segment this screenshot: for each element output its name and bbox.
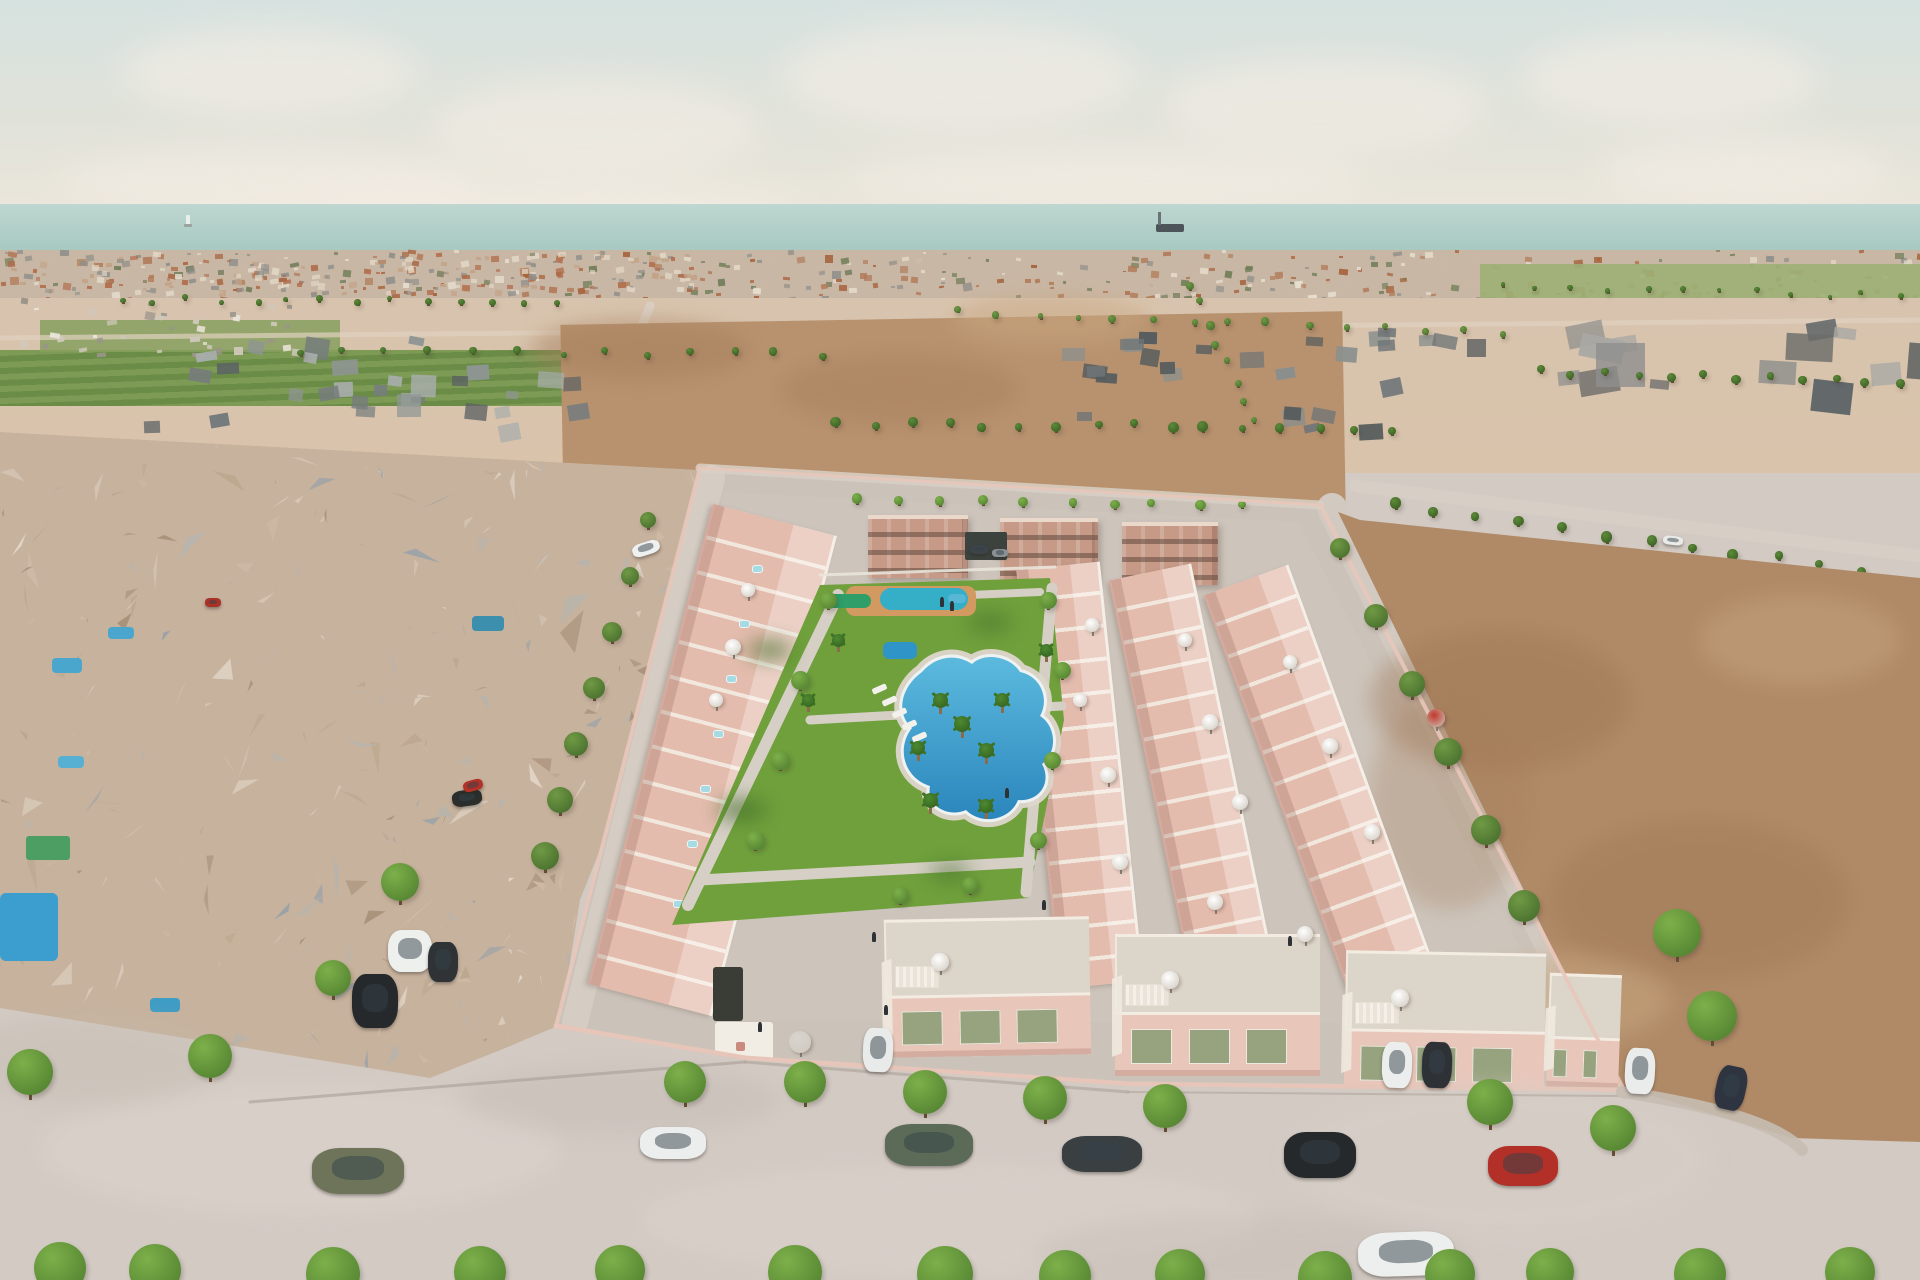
- coastal-city-building: [1132, 256, 1136, 259]
- boats: [1156, 224, 1184, 232]
- row-tree: [1390, 497, 1401, 508]
- foreground-cropped-trees: [1674, 1248, 1726, 1280]
- coastal-city-left-building: [636, 274, 643, 278]
- coastal-city-left-building: [235, 279, 243, 286]
- coastal-city-building: [1750, 257, 1757, 263]
- parasol-umbrella: [1364, 824, 1380, 840]
- coastal-city-building: [215, 253, 223, 258]
- roof-jacuzzis: [752, 565, 763, 574]
- field-mottling: [780, 355, 1020, 425]
- row-tree: [354, 299, 361, 306]
- industrial-sheds-building: [1834, 327, 1857, 340]
- coastal-city-left-building: [345, 259, 349, 261]
- apartment-block: [868, 515, 968, 578]
- palm-tree: [1040, 644, 1053, 657]
- car-behind-apartments: [970, 545, 988, 554]
- coastal-city-building: [783, 284, 789, 289]
- coastal-city-building: [643, 262, 647, 264]
- coastal-city-left-building: [684, 274, 691, 279]
- coastal-city-building: [836, 279, 842, 282]
- entrance-structures: [736, 1042, 745, 1051]
- coastal-city-building: [416, 287, 422, 291]
- distant-town-left-building: [42, 344, 48, 349]
- coastal-city-building: [1410, 252, 1415, 257]
- row-tree: [521, 300, 527, 306]
- coastal-city-building: [941, 282, 945, 285]
- villa-window: [1582, 1050, 1597, 1078]
- cloud: [1160, 58, 1490, 153]
- villa-window: [1472, 1047, 1513, 1083]
- coastal-city-building: [10, 276, 19, 284]
- grey-villas-right-building: [1086, 366, 1105, 378]
- coastal-city-left-building: [406, 291, 411, 295]
- grey-villas-right-building: [1077, 412, 1092, 421]
- roof-pergola: [1355, 1002, 1399, 1024]
- coastal-city-left-building: [412, 279, 420, 286]
- coastal-city-left-building: [189, 271, 192, 273]
- coastal-city-left-building: [348, 281, 357, 288]
- coastal-city-building: [373, 256, 377, 258]
- industrial-sheds-building: [1906, 343, 1920, 382]
- row-tree: [1015, 423, 1023, 431]
- row-tree: [1815, 560, 1824, 569]
- coastal-city-left-building: [456, 268, 459, 270]
- coastal-city-building: [1125, 291, 1130, 295]
- coastal-city-building: [726, 265, 730, 268]
- parasol-umbrella: [725, 639, 741, 655]
- coastal-city-building: [916, 291, 921, 295]
- car-cabin: [1080, 1142, 1125, 1161]
- coastal-city-left-building: [529, 274, 537, 280]
- coastal-city-building: [1895, 252, 1904, 258]
- cloud: [780, 22, 1140, 132]
- row-tree: [1150, 316, 1157, 323]
- coastal-city-left-building: [694, 287, 698, 290]
- coastal-city-building: [849, 288, 857, 293]
- distant-town-left-building: [268, 304, 276, 309]
- coastal-city-building: [943, 252, 948, 255]
- row-tree: [1240, 398, 1247, 405]
- field-mottling: [530, 320, 750, 380]
- coastal-city-building: [1379, 291, 1384, 295]
- grey-villas-left-building: [289, 388, 305, 401]
- right-street-trees: [1330, 538, 1350, 558]
- coastal-city-building: [832, 271, 841, 279]
- villa-roof-terrace: [1548, 973, 1622, 1038]
- coastal-city-left-building: [105, 283, 112, 288]
- coastal-city-building: [783, 277, 790, 281]
- row-tree: [954, 306, 961, 313]
- coastal-city-building: [183, 261, 188, 265]
- coastal-city-building: [1087, 288, 1092, 291]
- parasol-umbrella: [1207, 894, 1223, 910]
- coastal-city-left-building: [318, 282, 326, 289]
- coastal-city-left-building: [75, 291, 80, 294]
- coastal-city-building: [8, 251, 17, 258]
- coastal-city-left-building: [311, 265, 319, 272]
- parasol-umbrella: [1085, 618, 1099, 632]
- coastal-city-building: [1080, 264, 1088, 270]
- coastal-city-left-building: [590, 270, 596, 274]
- coastal-city-left-building: [141, 266, 145, 269]
- coastal-city-building: [1150, 270, 1159, 277]
- coastal-city-building: [1357, 267, 1362, 271]
- garden-trees: [820, 592, 837, 609]
- sidewalk-trees: [188, 1034, 232, 1078]
- coastal-city-building: [216, 278, 223, 285]
- industrial-sheds-building: [1811, 379, 1854, 415]
- foreground-cropped-trees: [1825, 1247, 1875, 1280]
- coastal-city-left-building: [612, 278, 616, 281]
- mesh-pools: [58, 756, 84, 768]
- villa-window: [1246, 1029, 1287, 1064]
- right-street-trees: [1471, 815, 1501, 845]
- grey-villas-right-building: [1358, 423, 1383, 441]
- coastal-city-building: [24, 273, 33, 279]
- row-tree: [1197, 421, 1208, 432]
- grey-villas-left-building: [387, 375, 402, 387]
- row-tree: [1858, 290, 1863, 295]
- garden-hedges: [968, 615, 1012, 630]
- coastal-city-left-building: [649, 255, 657, 261]
- grey-villas-left-building: [397, 394, 421, 417]
- coastal-city-building: [900, 266, 908, 273]
- coastal-city-building: [891, 286, 895, 288]
- coastal-city-building: [1338, 255, 1343, 257]
- roof-jacuzzis: [713, 730, 724, 739]
- coastal-city-left-building: [20, 282, 26, 285]
- coastal-city-building: [251, 293, 255, 296]
- coastal-city-building: [386, 276, 396, 284]
- grey-villas-right-building: [1140, 348, 1161, 368]
- parasol-umbrella: [1427, 709, 1445, 727]
- coastal-city-building: [247, 253, 250, 256]
- coastal-city-left-building: [200, 276, 207, 281]
- cloud: [430, 78, 760, 178]
- coastal-city-left-building: [364, 269, 371, 275]
- coastal-city-left-building: [615, 266, 623, 273]
- coastal-city-building: [403, 283, 410, 288]
- coastal-city-left-building: [226, 259, 230, 262]
- coastal-city-building: [1209, 267, 1215, 271]
- coastal-city-building: [1393, 251, 1402, 256]
- coastal-city-left-building: [527, 256, 531, 260]
- coastal-city-left-building: [130, 255, 138, 259]
- garden-trees: [1030, 832, 1047, 849]
- parasol-umbrella: [709, 693, 723, 707]
- coastal-city-building: [1525, 256, 1533, 262]
- villa-stairs: [1112, 975, 1122, 1057]
- left-street-trees: [583, 677, 605, 699]
- coastal-city-building: [923, 252, 926, 254]
- coastal-city-building: [864, 275, 872, 281]
- coastal-city-left-building: [62, 283, 71, 291]
- row-tree: [1238, 501, 1246, 509]
- grey-villas-right-building: [1240, 351, 1265, 368]
- parasol-umbrella: [789, 1031, 811, 1053]
- villa-window: [1017, 1009, 1059, 1044]
- row-tree: [1069, 498, 1077, 506]
- row-tree: [1857, 567, 1866, 576]
- villa-window: [1552, 1049, 1567, 1077]
- coastal-city-left-building: [511, 276, 514, 278]
- right-street-trees: [1434, 738, 1462, 766]
- coastal-city-left-building: [280, 287, 286, 292]
- row-tree: [1532, 286, 1537, 291]
- grey-villas-right-building: [1306, 337, 1324, 347]
- row-tree: [1567, 285, 1572, 290]
- coastal-city-left-building: [456, 278, 461, 282]
- coastal-city-building: [35, 277, 39, 281]
- foreground-cropped-trees: [129, 1244, 181, 1280]
- row-tree: [1108, 315, 1116, 323]
- row-tree: [1224, 357, 1230, 363]
- coastal-city-building: [60, 250, 69, 257]
- coastal-city-building: [939, 285, 944, 288]
- coastal-city-left-building: [462, 275, 470, 280]
- row-tree: [1428, 507, 1437, 516]
- coastal-city-building: [901, 276, 909, 281]
- coastal-city-left-building: [102, 271, 107, 276]
- coastal-city-left-building: [169, 286, 174, 289]
- coastal-city-building: [539, 275, 545, 279]
- mesh-pools: [0, 893, 58, 961]
- coastal-city-building: [495, 276, 504, 283]
- row-tree: [1647, 535, 1658, 546]
- coastal-city-building: [1291, 256, 1295, 260]
- sidewalk-trees: [664, 1061, 706, 1103]
- car-cabin: [1388, 1050, 1406, 1074]
- parasol-umbrella: [1283, 655, 1297, 669]
- distant-town-left-building: [97, 353, 106, 358]
- coastal-city-building: [53, 282, 58, 285]
- coastal-city-left-building: [618, 282, 626, 288]
- parasol-umbrella: [1202, 714, 1218, 730]
- row-tree: [561, 352, 567, 358]
- black-driveway-car: [1421, 1041, 1453, 1088]
- mesh-pools: [472, 616, 504, 631]
- sun-lounger: [881, 695, 897, 707]
- coastal-city-left-building: [324, 275, 329, 279]
- sidewalk-trees: [7, 1049, 53, 1095]
- coastal-city-left-building: [1, 282, 6, 286]
- coastal-city-building: [114, 266, 121, 270]
- white-car-east-road: [1663, 535, 1684, 546]
- coastal-city-left-building: [451, 291, 458, 296]
- distant-town-left-building: [285, 324, 291, 329]
- distant-town-left-building: [203, 342, 207, 345]
- coastal-city-building: [873, 264, 876, 267]
- coastal-city-building: [1339, 269, 1348, 275]
- grey-villas-left-building: [567, 403, 590, 422]
- coastal-city-left-building: [436, 252, 442, 257]
- roof-jacuzzis: [687, 840, 698, 849]
- coastal-city-building: [1216, 286, 1224, 293]
- coastal-city-left-building: [677, 286, 684, 291]
- white-hatchback: [640, 1127, 706, 1159]
- coastal-city-left-building: [470, 269, 475, 273]
- coastal-city-left-building: [376, 271, 381, 274]
- foreground-cropped-trees: [595, 1245, 645, 1280]
- coastal-city-building: [1426, 292, 1431, 295]
- row-tree: [219, 300, 224, 305]
- row-tree: [1636, 372, 1643, 379]
- row-tree: [1680, 286, 1686, 292]
- coastal-city-building: [1321, 281, 1331, 288]
- row-tree: [458, 299, 465, 306]
- coastal-city-left-building: [148, 277, 154, 282]
- coastal-city-building: [825, 255, 833, 263]
- foreground-villa: [1546, 973, 1622, 1089]
- coastal-city-building: [1766, 256, 1774, 263]
- row-tree: [1500, 331, 1507, 338]
- coastal-city-building: [1270, 276, 1275, 280]
- sea: [0, 204, 1920, 254]
- coastal-city-building: [1444, 262, 1450, 267]
- coastal-city-building: [986, 258, 990, 261]
- coastal-city-left-building: [435, 287, 439, 290]
- coastal-city-left-building: [391, 290, 396, 294]
- grey-villas-right-building: [1196, 345, 1212, 355]
- coastal-city-left-building: [363, 287, 366, 290]
- row-tree: [1731, 375, 1740, 384]
- distant-town-left-building: [287, 305, 293, 310]
- white-van: [388, 930, 432, 972]
- coastal-city-left-building: [106, 263, 112, 268]
- car-cabin: [332, 1156, 384, 1180]
- coastal-city-building: [1424, 252, 1432, 258]
- garden-hedges: [929, 865, 971, 879]
- row-tree: [1767, 372, 1775, 380]
- coastal-city-building: [1455, 250, 1459, 253]
- coastal-city-building: [1128, 266, 1137, 273]
- coastal-city-left-building: [92, 265, 99, 271]
- foreground-cropped-trees: [1526, 1248, 1574, 1280]
- person: [1288, 936, 1292, 946]
- coastal-city-building: [1186, 277, 1190, 280]
- coastal-city-left-building: [507, 290, 515, 296]
- coastal-city-building: [1080, 281, 1085, 284]
- coastal-city-building: [1227, 254, 1233, 259]
- row-tree: [283, 297, 288, 302]
- coastal-city-building: [1382, 283, 1389, 290]
- distant-town-left-building: [33, 308, 38, 311]
- coastal-city-left-building: [594, 256, 601, 261]
- grey-villas-left-building: [466, 364, 489, 380]
- coastal-city-building: [565, 293, 572, 297]
- coastal-city-building: [1386, 262, 1393, 267]
- mesh-pools: [150, 998, 180, 1012]
- coastal-city-building: [365, 278, 373, 285]
- entrance-structures: [713, 967, 743, 1021]
- grey-villas-left-building: [563, 377, 582, 392]
- grey-villas-left-building: [452, 375, 468, 386]
- roof-jacuzzis: [739, 620, 750, 629]
- roof-jacuzzis: [726, 675, 737, 684]
- grey-villas-right-building: [1467, 339, 1487, 357]
- aerial-development-render: Aerial 3D render of a new-build resident…: [0, 0, 1920, 1280]
- distant-town-left-building: [234, 347, 243, 355]
- villa-window: [902, 1011, 944, 1046]
- coastal-city-left-building: [691, 275, 697, 280]
- palm-tree: [923, 793, 938, 808]
- dirt-mottling: [1700, 595, 1900, 685]
- row-tree: [1317, 424, 1326, 433]
- coastal-city-building: [623, 252, 630, 257]
- coastal-city-building: [614, 291, 620, 296]
- garden-trees: [1040, 592, 1057, 609]
- car-cabin: [869, 1036, 887, 1059]
- garden-hedges: [717, 801, 767, 819]
- coastal-city-left-building: [402, 262, 406, 266]
- garden-trees: [746, 831, 765, 850]
- parasol-umbrella: [1100, 767, 1116, 783]
- row-tree: [1557, 522, 1567, 532]
- coastal-city-left-building: [542, 253, 547, 258]
- coastal-city-building: [334, 252, 338, 255]
- coastal-city-left-building: [149, 287, 155, 293]
- garden-hedges: [747, 642, 793, 658]
- coastal-city-left-building: [402, 257, 406, 259]
- coastal-city-left-building: [263, 269, 269, 274]
- left-street-trees: [621, 567, 639, 585]
- coastal-city-building: [897, 284, 904, 288]
- coastal-city-building: [815, 265, 819, 268]
- coastal-city-building: [952, 273, 957, 277]
- grey-villas-right-building: [1160, 362, 1175, 374]
- person: [1042, 900, 1046, 910]
- coastal-city-building: [294, 272, 301, 276]
- roof-pergola: [895, 966, 939, 988]
- distant-town-left-building: [192, 318, 198, 324]
- car-cabin: [1300, 1140, 1340, 1164]
- foreground-cropped-trees: [454, 1246, 506, 1280]
- cloud: [120, 28, 420, 118]
- row-tree: [1206, 321, 1214, 329]
- right-street-trees: [1364, 604, 1388, 628]
- coastal-city-building: [5, 251, 9, 253]
- grey-car: [1062, 1136, 1142, 1172]
- coastal-city-building: [700, 277, 706, 280]
- row-tree: [1798, 376, 1806, 384]
- coastal-city-left-building: [90, 274, 94, 278]
- industrial-sheds-building: [1785, 333, 1833, 363]
- palm-tree: [954, 716, 970, 732]
- coastal-city-building: [167, 277, 171, 280]
- coastal-city-building: [578, 287, 586, 295]
- coastal-city-building: [378, 285, 385, 289]
- person: [884, 1005, 888, 1015]
- grey-villas-right-building: [1062, 347, 1085, 361]
- coastal-city-building: [941, 270, 945, 273]
- coastal-city-building: [1064, 271, 1069, 275]
- coastal-city-building: [1716, 250, 1720, 252]
- row-tree: [425, 298, 432, 305]
- coastal-city-building: [1596, 258, 1600, 261]
- coastal-city-building: [717, 279, 725, 286]
- palm-tree: [911, 741, 925, 755]
- distant-town-left-building: [21, 298, 29, 305]
- distant-town-left-building: [19, 341, 27, 348]
- coastal-city-left-building: [25, 255, 33, 261]
- coastal-city-building: [750, 259, 755, 263]
- palm-tree: [979, 743, 994, 758]
- sidewalk-trees: [315, 960, 351, 996]
- mesh-pools: [108, 627, 134, 639]
- row-tree: [894, 496, 903, 505]
- coastal-city-building: [796, 256, 805, 263]
- sidewalk-trees: [1023, 1076, 1067, 1120]
